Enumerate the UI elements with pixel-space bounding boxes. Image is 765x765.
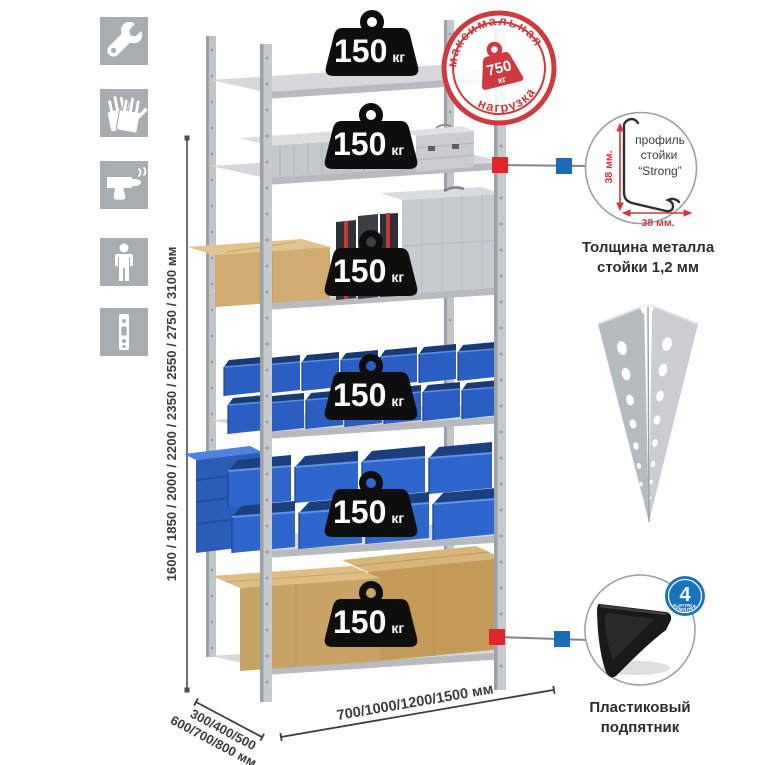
- gloves-icon: [100, 89, 148, 137]
- marker-blue-top: [556, 158, 572, 174]
- max-load-stamp: максимальная нагрузка 750 кг: [438, 7, 560, 129]
- metal-angle-image: [590, 300, 705, 535]
- foot-caption: Пластиковый подпятник: [565, 698, 715, 738]
- svg-text:стойки: стойки: [641, 148, 678, 162]
- height-options-label: 1600 / 1850 / 2000 / 2200 / 2350 / 2550 …: [164, 247, 179, 582]
- drill-icon: [100, 161, 148, 209]
- svg-text:“Strong”: “Strong”: [638, 164, 681, 178]
- post-profile-detail: 38 мм. 38 мм. профиль стойки “Strong”: [583, 110, 701, 228]
- product-infographic: 1600 / 1850 / 2000 / 2200 / 2350 / 2550 …: [0, 0, 765, 765]
- marker-blue-bottom: [554, 631, 570, 647]
- svg-text:профиль: профиль: [635, 133, 685, 147]
- perforated-post-icon: [100, 308, 148, 356]
- plastic-foot-detail: 4 штуки в комплекте: [583, 570, 709, 692]
- wrench-icon: [100, 17, 148, 65]
- load-badge-2: 150кг: [325, 107, 418, 170]
- load-badge-1: 150кг: [326, 14, 419, 77]
- svg-text:38 мм.: 38 мм.: [603, 150, 615, 183]
- person-icon: [100, 238, 148, 286]
- svg-text:38 мм.: 38 мм.: [641, 217, 674, 228]
- profile-caption: Толщина металла стойки 1,2 мм: [568, 238, 728, 278]
